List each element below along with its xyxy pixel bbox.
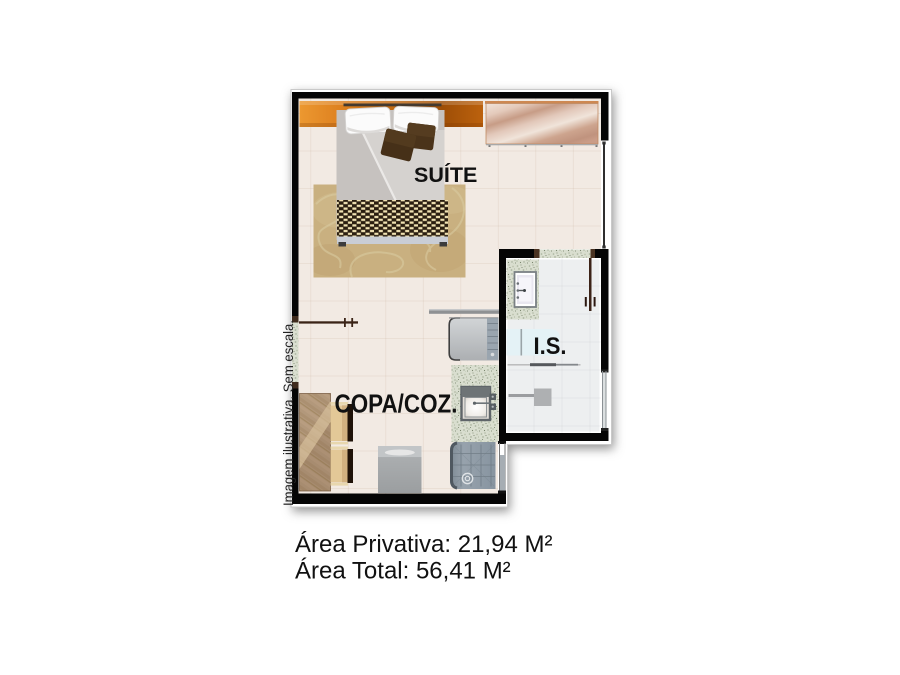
svg-text:Imagem ilustrativa. Sem escala: Imagem ilustrativa. Sem escala.	[280, 320, 296, 506]
svg-text:SUÍTE: SUÍTE	[414, 162, 477, 187]
svg-text:COPA/COZ.: COPA/COZ.	[335, 389, 458, 419]
svg-text:I.S.: I.S.	[534, 333, 567, 360]
svg-text:Área Privativa: 21,94 M²: Área Privativa: 21,94 M²	[295, 531, 552, 558]
svg-text:Área Total: 56,41 M²: Área Total: 56,41 M²	[295, 558, 511, 585]
